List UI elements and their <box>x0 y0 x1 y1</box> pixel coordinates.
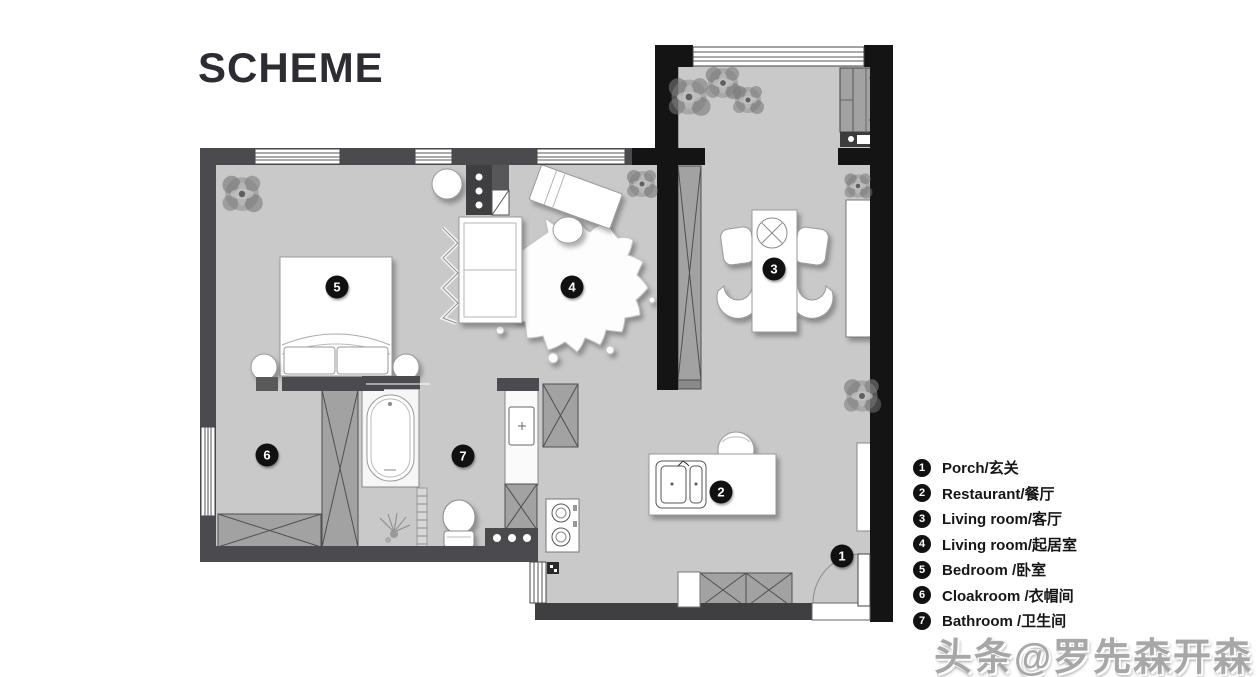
legend-item-porch: 1 Porch/玄关 <box>913 457 1077 478</box>
window <box>530 562 546 603</box>
page: SCHEME 1 2 3 4 5 6 7 1 Porch/玄关 2 Restau… <box>0 0 1259 677</box>
legend-label: Living room/起居室 <box>942 534 1077 555</box>
plan-marker-living-room-2: 4 <box>561 276 584 299</box>
tv-console <box>846 200 874 337</box>
plant-icon <box>733 86 764 114</box>
legend-item-living-room-2: 4 Living room/起居室 <box>913 534 1077 555</box>
legend-num: 6 <box>913 586 931 604</box>
legend-label: Bedroom /卧室 <box>942 559 1046 580</box>
plan-marker-bathroom: 7 <box>452 445 475 468</box>
window <box>537 149 625 164</box>
plant-icon <box>845 173 873 198</box>
window <box>693 47 864 66</box>
plan-marker-bedroom: 5 <box>326 276 349 299</box>
legend-num: 4 <box>913 535 931 553</box>
kitchen-low-cabinet <box>505 484 537 530</box>
kitchen-counter <box>505 390 538 485</box>
plant-icon <box>844 379 881 413</box>
plant-icon <box>223 176 263 212</box>
window <box>255 149 340 164</box>
entry-cabinet <box>466 163 509 215</box>
plan-marker-restaurant: 2 <box>710 481 733 504</box>
plan-marker-cloakroom: 6 <box>256 444 279 467</box>
legend-item-living-room: 3 Living room/客厅 <box>913 508 1077 529</box>
plant-icon <box>627 170 658 198</box>
legend-item-bedroom: 5 Bedroom /卧室 <box>913 559 1077 580</box>
watermark: 头条@罗先森开森 <box>934 626 1253 677</box>
window <box>415 149 452 164</box>
legend-item-cloakroom: 6 Cloakroom /衣帽间 <box>913 585 1077 606</box>
page-title: SCHEME <box>198 44 384 92</box>
legend-item-restaurant: 2 Restaurant/餐厅 <box>913 483 1077 504</box>
sofa <box>459 217 522 323</box>
towel-radiator <box>417 488 427 550</box>
legend-label: Cloakroom /衣帽间 <box>942 585 1074 606</box>
shoe-cabinet <box>700 573 746 607</box>
window <box>201 427 215 516</box>
kitchen-bar <box>485 528 538 548</box>
legend-num: 7 <box>913 612 931 630</box>
legend-label: Porch/玄关 <box>942 457 1019 478</box>
cloakroom-wardrobe-vertical <box>322 390 358 547</box>
legend-num: 1 <box>913 459 931 477</box>
nightstand <box>251 354 277 380</box>
stool <box>432 169 462 199</box>
plant-icon <box>669 78 711 116</box>
kitchen-tall-cabinet <box>543 384 578 447</box>
porch-cabinet <box>678 572 700 607</box>
toilet <box>443 500 475 547</box>
plan-marker-porch: 1 <box>831 545 854 568</box>
legend-label: Restaurant/餐厅 <box>942 483 1055 504</box>
stove <box>546 499 579 552</box>
desk-chair <box>553 217 583 243</box>
legend-label: Living room/客厅 <box>942 508 1062 529</box>
bathtub <box>362 389 419 487</box>
legend: 1 Porch/玄关 2 Restaurant/餐厅 3 Living room… <box>913 457 1077 636</box>
legend-num: 2 <box>913 484 931 502</box>
shoe-cabinet <box>746 573 792 607</box>
tv-wall-cabinet <box>678 166 701 389</box>
floor-drain-symbol <box>547 562 559 574</box>
legend-num: 5 <box>913 561 931 579</box>
plan-marker-living-room: 3 <box>763 258 786 281</box>
cloakroom-wardrobe-bottom <box>218 514 321 547</box>
legend-num: 3 <box>913 510 931 528</box>
